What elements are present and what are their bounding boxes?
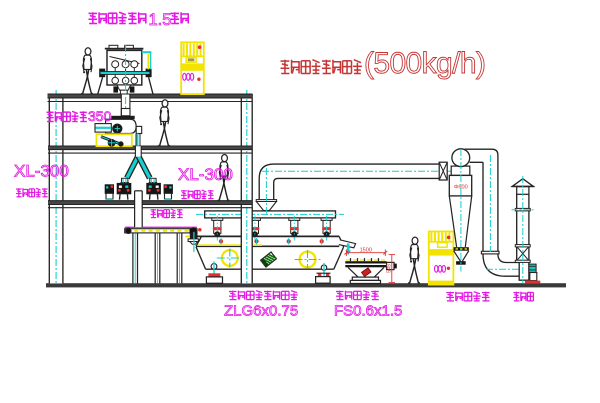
- svg-text:ZLG6x0.75: ZLG6x0.75: [224, 303, 298, 320]
- svg-text:1500: 1500: [360, 247, 372, 253]
- svg-text:XL-300: XL-300: [178, 165, 233, 184]
- svg-text:545: 545: [387, 264, 393, 273]
- svg-text:350: 350: [88, 108, 112, 124]
- svg-text:1.5: 1.5: [149, 11, 172, 29]
- svg-text:(500kg/h): (500kg/h): [364, 47, 485, 80]
- svg-text:XL-300: XL-300: [14, 162, 69, 181]
- svg-text:FS0.6x1.5: FS0.6x1.5: [334, 303, 402, 320]
